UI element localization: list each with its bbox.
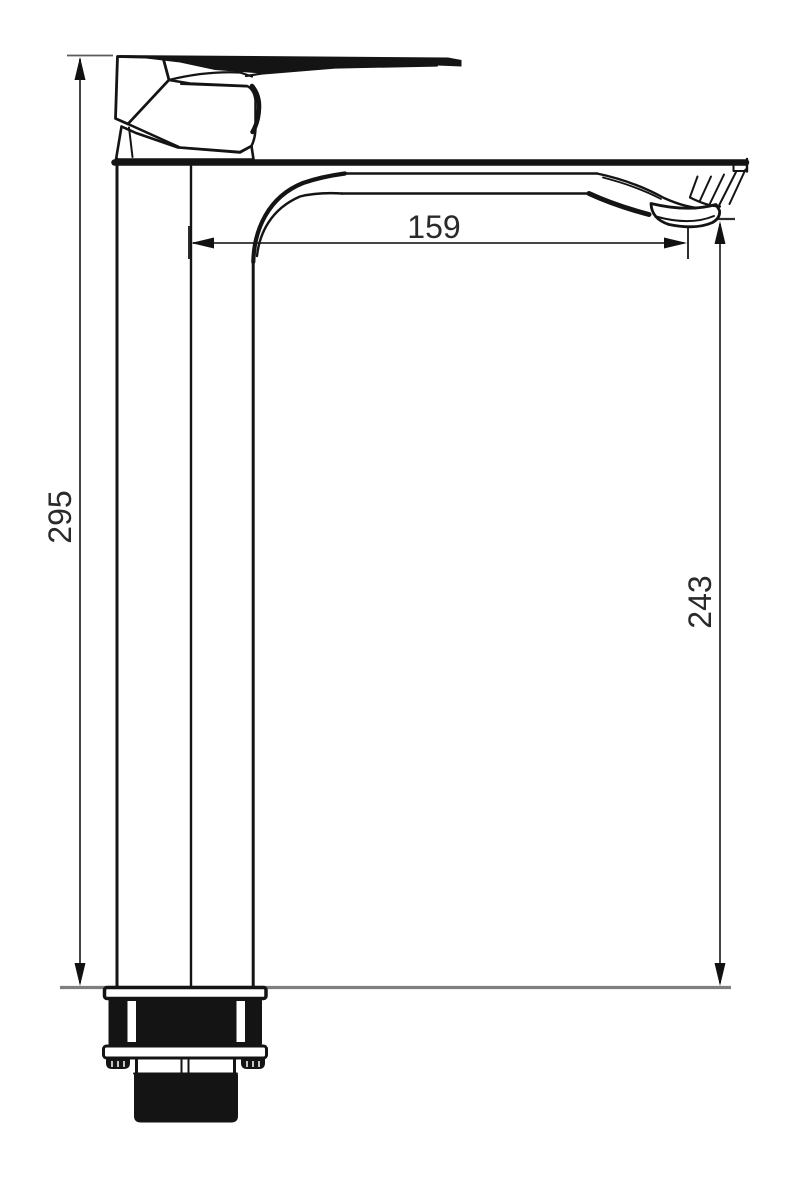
nozzle-inner-curve [603, 178, 661, 200]
gasket-slot-left [128, 1001, 137, 1042]
gasket-slot-right [237, 1001, 246, 1042]
faucet-handle [116, 55, 462, 160]
arrowhead-right-icon [664, 238, 687, 249]
arrowhead-up-icon [715, 221, 726, 244]
faucet-spout [253, 170, 745, 263]
tab-thread-ridges [112, 1061, 259, 1067]
faucet-dimension-drawing: 295 159 243 [0, 0, 803, 1200]
faucet-mounting-base [104, 988, 267, 1123]
nozzle-facet-lines [690, 170, 746, 207]
spout-bend-inner-curve [257, 193, 342, 256]
base-supply-block [134, 1075, 238, 1123]
nozzle-lower-thick-curve [589, 194, 649, 215]
handle-cap-top-curve [169, 72, 252, 80]
base-flange [105, 988, 267, 999]
dimension-total-height: 295 [42, 56, 113, 987]
spout-bend-outer-curve [253, 174, 345, 263]
aerator-tip [651, 204, 720, 227]
arrowhead-down-icon [715, 963, 726, 986]
technical-drawing-canvas: 295 159 243 [0, 0, 803, 1200]
base-shank [134, 1058, 237, 1074]
arrowhead-up-icon [75, 57, 86, 80]
dimension-outlet-height: 243 [682, 219, 735, 986]
arrowhead-left-icon [191, 238, 214, 249]
arrowhead-down-icon [75, 963, 86, 986]
base-locknut [104, 1046, 267, 1058]
dimension-label-outlet-height: 243 [682, 575, 718, 628]
faucet-body-column [115, 159, 748, 987]
dimension-label-spout-reach: 159 [407, 209, 460, 245]
dimension-label-total-height: 295 [42, 490, 78, 543]
